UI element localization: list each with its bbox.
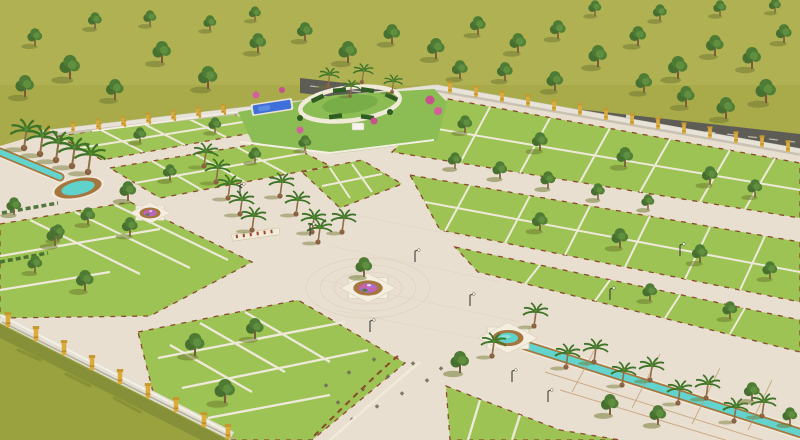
wall-pillar [499, 90, 504, 102]
fence-pillar [98, 123, 101, 130]
wall-pillar [577, 103, 582, 115]
wall-pillar [707, 126, 712, 138]
wall-pillar [173, 397, 179, 412]
flower-bush [279, 87, 285, 93]
wall-pillar [733, 131, 738, 143]
flower-bush [371, 118, 378, 125]
flower-medallion [130, 203, 170, 224]
wall-pillar [61, 340, 67, 355]
flower-bush [297, 127, 304, 134]
wall-pillar [525, 94, 530, 106]
aerial-render: Aerial 3D render of a gated residential … [0, 0, 800, 440]
wall-pillar [551, 99, 556, 111]
fence-pillar [198, 111, 201, 118]
shrub [387, 109, 393, 115]
wall-pillar [447, 81, 452, 93]
wall-pillar [117, 369, 123, 384]
wall-pillar [201, 412, 207, 427]
wall-pillar [759, 135, 764, 147]
fence-pillar [123, 120, 126, 127]
wall-pillar [225, 424, 231, 439]
render-stage: Aerial 3D render of a gated residential … [0, 0, 800, 440]
central-medallion [340, 273, 396, 302]
wall-pillar [89, 355, 95, 370]
shrub [297, 115, 303, 121]
fence-pillar [223, 108, 226, 115]
wall-pillar [681, 122, 686, 134]
flower-bush [426, 96, 435, 105]
flower-bush [434, 107, 442, 115]
flower-bush [253, 92, 260, 99]
wall-pillar [785, 140, 790, 152]
wall-pillar [473, 85, 478, 97]
field-light-band [0, 0, 800, 85]
wall-pillar [145, 383, 151, 398]
wall-pillar [603, 108, 608, 120]
wall-pillar [655, 117, 660, 129]
wall-pillar [33, 326, 39, 341]
fence-pillar [148, 117, 151, 124]
wall-pillar [71, 122, 75, 132]
wall-pillar [5, 312, 11, 327]
park-kiosk [352, 123, 364, 130]
wall-pillar [629, 113, 634, 125]
fence-pillar [173, 114, 176, 121]
